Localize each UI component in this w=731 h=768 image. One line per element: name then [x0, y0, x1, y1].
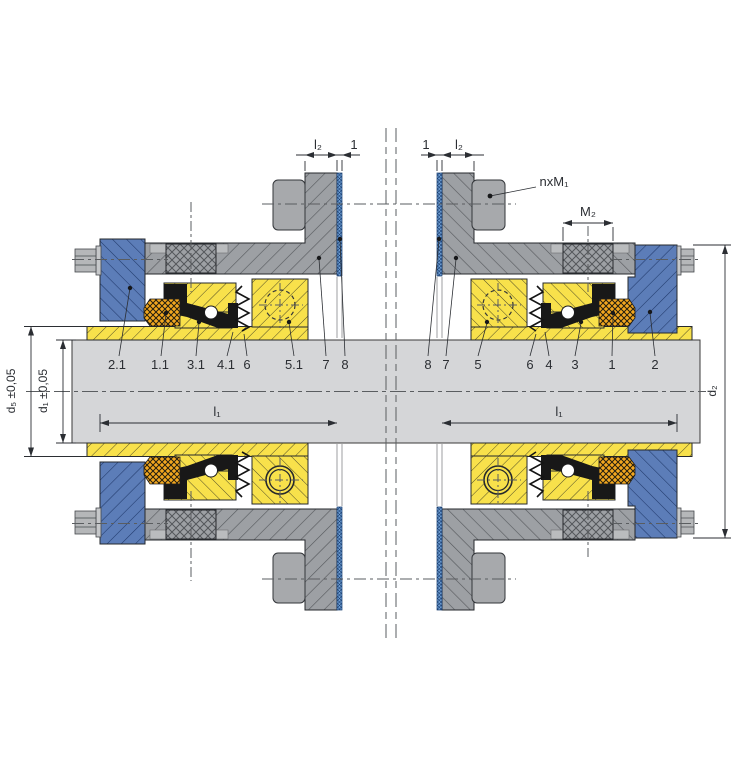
- part-label-7-right: 7: [442, 357, 449, 372]
- oring-bottom-right: [599, 457, 635, 484]
- dim-label-nxm1: nxM₁: [540, 174, 570, 189]
- diagram-canvas: l₂ 1 l₂ 1 nxM₁ M₂ d₂: [0, 0, 731, 768]
- cover-bolt-bottom-right: [677, 508, 694, 537]
- flange-bolt-top-right: [472, 180, 505, 230]
- part-label-4.1: 4.1: [217, 357, 235, 372]
- seal-cross-section-diagram: l₂ 1 l₂ 1 nxM₁ M₂ d₂: [0, 0, 731, 768]
- drive-pin-bottom-right: [562, 464, 575, 477]
- oring-top-left: [144, 299, 180, 326]
- drive-pin-top-left: [205, 306, 218, 319]
- dim-label-d1: d₁ ±0,05: [36, 369, 50, 413]
- part-label-3: 3: [571, 357, 578, 372]
- dim-label-gasket-left: 1: [350, 137, 357, 152]
- part-label-6-right: 6: [526, 357, 533, 372]
- seal-cover-top-left: [100, 239, 145, 321]
- oring-top-right: [599, 299, 635, 326]
- part-label-5.1: 5.1: [285, 357, 303, 372]
- part-label-4: 4: [545, 357, 552, 372]
- part-label-7-left: 7: [322, 357, 329, 372]
- dim-label-d2: d₂: [705, 385, 719, 397]
- part-label-6-left: 6: [243, 357, 250, 372]
- gasket-bottom-left: [337, 507, 342, 610]
- spring-holder-top-left: [252, 279, 308, 329]
- seal-cover-bottom-left: [100, 462, 145, 544]
- seal-cover-bottom-right: [628, 450, 677, 538]
- gasket-bottom-right: [437, 507, 442, 610]
- part-label-8-right: 8: [424, 357, 431, 372]
- part-label-8-left: 8: [341, 357, 348, 372]
- drive-pin-top-right: [562, 306, 575, 319]
- part-label-1.1: 1.1: [151, 357, 169, 372]
- spring-holder-bottom-right: [471, 456, 527, 504]
- part-label-2.1: 2.1: [108, 357, 126, 372]
- dim-label-m2: M₂: [580, 204, 596, 219]
- cover-bolt-bottom-left: [75, 508, 101, 537]
- part-label-1: 1: [608, 357, 615, 372]
- spring-holder-bottom-left: [252, 456, 308, 504]
- oring-bottom-left: [144, 457, 180, 484]
- drive-pin-bottom-left: [205, 464, 218, 477]
- seal-cover-top-right: [628, 245, 677, 333]
- part-label-3.1: 3.1: [187, 357, 205, 372]
- flange-bolt-bottom-right: [472, 553, 505, 603]
- dim-label-l2-right: l₂: [455, 137, 463, 152]
- part-label-2: 2: [651, 357, 658, 372]
- dim-label-gasket-right: 1: [422, 137, 429, 152]
- dim-label-l1-right: l₁: [555, 404, 563, 419]
- spring-holder-top-right: [471, 279, 527, 329]
- flange-bolt-bottom-left: [273, 553, 305, 603]
- cover-bolt-top-right: [677, 246, 694, 275]
- gasket-top-right: [437, 173, 442, 276]
- shaft-sleeve-bottom-left: [87, 443, 308, 457]
- cover-bolt-top-left: [75, 246, 101, 275]
- dim-label-d5: d₅ ±0,05: [4, 368, 18, 413]
- flange-bolt-top-left: [273, 180, 305, 230]
- dim-label-l1-left: l₁: [213, 404, 221, 419]
- dim-label-l2-left: l₂: [314, 137, 322, 152]
- part-label-5: 5: [474, 357, 481, 372]
